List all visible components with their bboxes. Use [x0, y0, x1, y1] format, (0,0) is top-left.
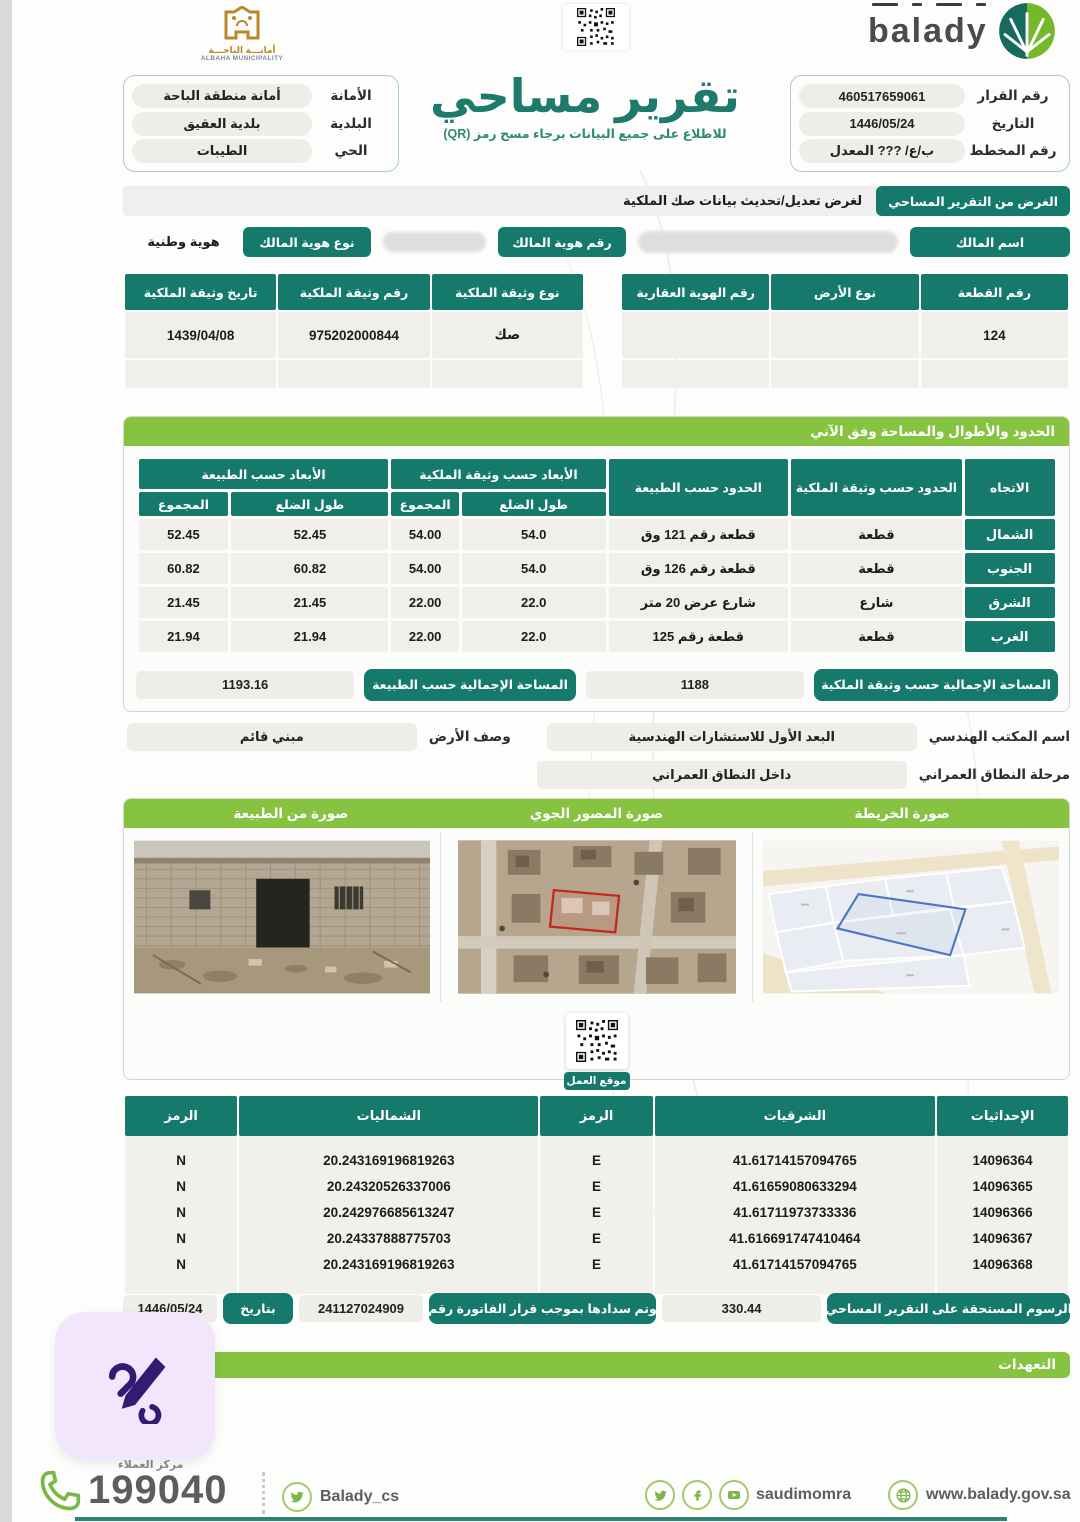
twitter-handle-group: Balady_cs [282, 1482, 399, 1512]
invoice-label: وتم سدادها بموجب قرار الفاتورة رقم [429, 1293, 656, 1324]
report-title-block: تقرير مساحي للاطلاع على جميع البيانات بر… [420, 70, 750, 141]
images-section: صورة الخريطة صورة المصور الجوي صورة من ا… [123, 798, 1070, 1080]
page-edge-strip [0, 0, 12, 1522]
land-type-value [771, 312, 918, 358]
qr-code-icon [577, 8, 615, 46]
twitter-handle: Balady_cs [320, 1488, 399, 1506]
pen-signature-icon [97, 1348, 173, 1424]
page-title: تقرير مساحي [420, 70, 750, 122]
plan-number-label: رقم المخطط [965, 143, 1061, 159]
coordinates-id-header: الإحداثيات [937, 1096, 1068, 1136]
report-qr-card [563, 4, 629, 50]
signature-sticker [55, 1312, 215, 1460]
map-image-cell [753, 832, 1069, 1002]
dims-nature-header: الأبعاد حسب الطبيعة [139, 459, 389, 489]
owner-id-redacted [383, 232, 486, 252]
easting-header: الشرقيات [655, 1096, 936, 1136]
boundary-row-east: الشرق شارع شارع عرض 20 متر 22.0 22.00 21… [139, 587, 1055, 618]
bounds-nature-header: الحدود حسب الطبيعة [609, 459, 789, 516]
report-date-label: التاريخ [965, 116, 1061, 132]
purpose-value: لغرض تعديل/تحديث بيانات صك الملكية [623, 193, 862, 209]
nature-side-header: طول الضلع [231, 492, 388, 516]
work-qr-card [566, 1013, 628, 1069]
parcel-table: رقم القطعة نوع الأرض رقم الهوية العقارية… [620, 272, 1070, 390]
owner-row: اسم المالك رقم هوية المالك نوع هوية الما… [123, 226, 1070, 258]
amana-value: أمانة منطقة الباحة [132, 84, 312, 108]
deed-type-header: نوع وثيقة الملكية [432, 274, 583, 310]
area-totals-row: المساحة الإجمالية حسب وثيقة الملكية 1188… [136, 668, 1058, 701]
balady-wordmark: balady [868, 1, 988, 61]
owner-id-type-value: هوية وطنية [136, 234, 231, 250]
aerial-photo-image [458, 839, 736, 995]
owner-name-label: اسم المالك [910, 227, 1070, 257]
footer-divider [262, 1472, 265, 1514]
engineering-office-value: البعد الأول للاستشارات الهندسية [547, 723, 917, 751]
land-description-value: مبني قائم [127, 723, 417, 751]
total-area-nature-value: 1193.16 [136, 671, 354, 699]
nature-image-title: صورة من الطبيعة [138, 806, 444, 822]
deed-table: نوع وثيقة الملكية رقم وثيقة الملكية تاري… [123, 272, 585, 390]
images-grid [124, 832, 1069, 1002]
nature-total-header: المجموع [139, 492, 229, 516]
deed-date-header: تاريخ وثيقة الملكية [125, 274, 276, 310]
plan-number-value: ب/ع/ ??? المعدل [799, 139, 965, 163]
page-subtitle: للاطلاع على جميع البيانات برجاء مسح رمز … [420, 126, 750, 141]
urban-scope-value: داخل النطاق العمراني [537, 761, 907, 789]
footer-rule [75, 1517, 1007, 1521]
coordinate-row: 1409636741.616691747410464E20.2433788877… [125, 1226, 1068, 1252]
report-date-value: 1446/05/24 [799, 112, 965, 136]
boundaries-table: الاتجاه الحدود حسب وثيقة الملكية الحدود … [136, 456, 1058, 655]
amana-row: الأمانة أمانة منطقة الباحة [132, 83, 390, 109]
dims-deed-header: الأبعاد حسب وثيقة الملكية [391, 459, 605, 489]
cadastral-map-image [763, 839, 1059, 995]
municipality-emblem-icon [220, 6, 264, 40]
deed-side-header: طول الضلع [462, 492, 606, 516]
bounds-deed-header: الحدود حسب وثيقة الملكية [791, 459, 962, 516]
images-section-header: صورة الخريطة صورة المصور الجوي صورة من ا… [124, 799, 1069, 828]
twitter-icon [645, 1480, 675, 1510]
call-center-group: 199040 [38, 1468, 227, 1513]
decision-number-label: رقم القرار [965, 88, 1061, 104]
social-group: saudimomra [645, 1480, 851, 1510]
social-handle: saudimomra [756, 1486, 851, 1504]
owner-id-label: رقم هوية المالك [498, 227, 626, 257]
site-photo-image [134, 839, 430, 995]
municipality-label: البلدية [312, 116, 390, 132]
work-qr-label: موقع العمل [564, 1072, 630, 1090]
owner-name-redacted [638, 231, 898, 253]
table-row [622, 360, 1068, 388]
northing-code-header: الرمز [125, 1096, 237, 1136]
parcel-number-value: 124 [921, 312, 1068, 358]
engineering-office-label: اسم المكتب الهندسي [929, 729, 1070, 745]
district-value: الطيبات [132, 139, 312, 163]
aerial-image-title: صورة المصور الجوي [444, 806, 750, 822]
total-area-deed-label: المساحة الإجمالية حسب وثيقة الملكية [814, 669, 1058, 701]
deed-date-value: 1439/04/08 [125, 312, 276, 358]
website-group: www.balady.gov.sa [888, 1480, 1071, 1510]
balady-logo: balady [868, 0, 1074, 62]
facebook-icon [682, 1480, 712, 1510]
boundary-row-north: الشمال قطعة قطعة رقم 121 وق 54.0 54.00 5… [139, 519, 1055, 550]
parcel-number-header: رقم القطعة [921, 274, 1068, 310]
pledges-section-title: التعهدات [123, 1352, 1070, 1378]
total-area-nature-label: المساحة الإجمالية حسب الطبيعة [364, 669, 575, 701]
property-id-header: رقم الهوية العقارية [622, 274, 769, 310]
coordinate-row: 1409636541.61659080633294E20.24320526337… [125, 1174, 1068, 1200]
owner-id-type-label: نوع هوية المالك [243, 227, 371, 257]
boundary-row-south: الجنوب قطعة قطعة رقم 126 وق 54.0 54.00 6… [139, 553, 1055, 584]
fees-row: الرسوم المستحقة على التقرير المساحي 330.… [123, 1292, 1070, 1324]
plan-number-row: رقم المخطط ب/ع/ ??? المعدل [799, 138, 1061, 164]
table-row [125, 360, 583, 388]
nature-image-cell [124, 832, 441, 1002]
coordinate-row: 1409636641.61711973733336E20.24297668561… [125, 1200, 1068, 1226]
amana-label: الأمانة [312, 88, 390, 104]
property-id-value [622, 312, 769, 358]
table-row: صك 975202000844 1439/04/08 [125, 312, 583, 358]
deed-number-header: رقم وثيقة الملكية [278, 274, 429, 310]
map-image-title: صورة الخريطة [749, 806, 1055, 822]
phone-icon [38, 1469, 82, 1513]
municipality-value: بلدية العقيق [132, 112, 312, 136]
urban-scope-row: مرحلة النطاق العمراني داخل النطاق العمرا… [123, 760, 1070, 790]
decision-number-row: رقم القرار 460517659061 [799, 83, 1061, 109]
payment-date-label: بتاريخ [223, 1293, 293, 1324]
boundary-row-west: الغرب قطعة قطعة رقم 125 22.0 22.00 21.94… [139, 621, 1055, 652]
decision-info-box: رقم القرار 460517659061 التاريخ 1446/05/… [790, 75, 1070, 172]
deed-number-value: 975202000844 [278, 312, 429, 358]
location-info-box: الأمانة أمانة منطقة الباحة البلدية بلدية… [123, 75, 399, 172]
report-date-row: التاريخ 1446/05/24 [799, 111, 1061, 137]
invoice-number: 241127024909 [299, 1295, 423, 1322]
coordinate-row: 1409636441.61714157094765E20.24316919681… [125, 1136, 1068, 1174]
globe-icon [888, 1480, 918, 1510]
footer: مركز العملاء 199040 Balady_cs saudimo [0, 1452, 1080, 1522]
qr-code-icon [576, 1020, 618, 1062]
purpose-label: الغرض من التقرير المساحي [876, 186, 1070, 216]
office-row: اسم المكتب الهندسي البعد الأول للاستشارا… [123, 722, 1070, 752]
survey-report-page: أمانـــة الباحـــة ALBAHA MUNICIPALITY b… [0, 0, 1080, 1522]
municipality-name-en: ALBAHA MUNICIPALITY [190, 55, 294, 62]
aerial-image-cell [441, 832, 753, 1002]
coordinate-row: 1409636841.61714157094765E20.24316919681… [125, 1252, 1068, 1294]
call-center-number: 199040 [88, 1468, 227, 1513]
boundaries-section-title: الحدود والأطوال والمساحة وفق الآتي [124, 417, 1069, 446]
northing-header: الشماليات [239, 1096, 538, 1136]
balady-arabic-marks [872, 3, 1002, 11]
website-url: www.balady.gov.sa [926, 1486, 1071, 1504]
total-area-deed-value: 1188 [586, 671, 804, 699]
district-label: الحي [312, 143, 390, 159]
decision-number-value: 460517659061 [799, 84, 965, 108]
deed-type-value: صك [432, 312, 583, 358]
land-type-header: نوع الأرض [771, 274, 918, 310]
municipality-row: البلدية بلدية العقيق [132, 111, 390, 137]
coordinates-table: الإحداثيات الشرقيات الرمز الشماليات الرم… [123, 1096, 1070, 1294]
deed-total-header: المجموع [391, 492, 458, 516]
boundaries-section: الحدود والأطوال والمساحة وفق الآتي الاتج… [123, 416, 1070, 712]
district-row: الحي الطيبات [132, 138, 390, 164]
twitter-icon [282, 1482, 312, 1512]
urban-scope-label: مرحلة النطاق العمراني [919, 767, 1070, 783]
fees-label: الرسوم المستحقة على التقرير المساحي [827, 1293, 1070, 1324]
youtube-icon [719, 1480, 749, 1510]
balady-palm-emblem-icon [998, 2, 1056, 60]
easting-code-header: الرمز [540, 1096, 652, 1136]
municipality-name-ar: أمانـــة الباحـــة [190, 45, 294, 55]
direction-header: الاتجاه [965, 459, 1055, 516]
land-description-label: وصف الأرض [429, 729, 511, 745]
fees-amount: 330.44 [662, 1295, 822, 1322]
table-row: 124 [622, 312, 1068, 358]
work-location-qr: موقع العمل [564, 1013, 630, 1090]
purpose-row: الغرض من التقرير المساحي لغرض تعديل/تحدي… [123, 186, 1070, 216]
municipality-logo: أمانـــة الباحـــة ALBAHA MUNICIPALITY [190, 6, 294, 68]
